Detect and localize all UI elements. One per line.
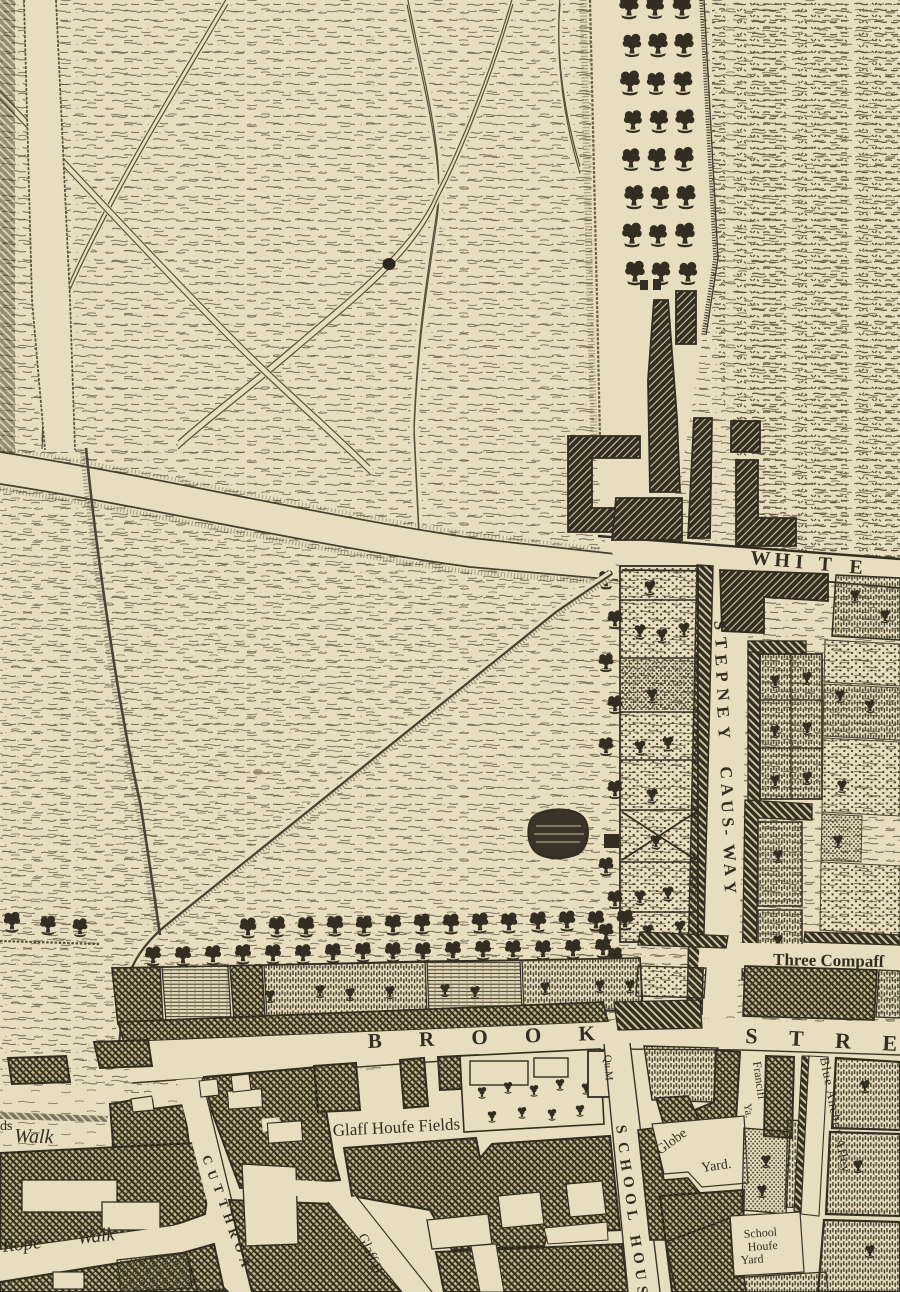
svg-text:Y: Y [714, 725, 734, 739]
svg-text:P: P [712, 670, 732, 682]
svg-text:T: T [818, 553, 834, 576]
svg-text:Qu.M: Qu.M [601, 1054, 615, 1081]
svg-text:Ya.: Ya. [741, 1103, 755, 1119]
svg-text:Walk: Walk [14, 1125, 55, 1148]
svg-text:Three Compafſ: Three Compafſ [773, 950, 885, 971]
svg-text:C: C [716, 765, 736, 779]
svg-text:Y: Y [720, 880, 740, 894]
svg-text:S: S [718, 816, 738, 827]
svg-text:E: E [711, 653, 731, 666]
svg-text:ds: ds [0, 1119, 12, 1134]
svg-text:Walk: Walk [76, 1224, 116, 1249]
svg-text:S: S [710, 619, 730, 630]
svg-text:E: E [713, 705, 733, 718]
svg-text:Yard: Yard [740, 1251, 764, 1267]
svg-text:W: W [719, 843, 740, 862]
svg-text:U: U [717, 799, 737, 813]
svg-text:W: W [750, 547, 771, 570]
svg-text:Rope: Rope [0, 1232, 42, 1257]
svg-text:H: H [774, 549, 791, 572]
svg-text:E: E [849, 556, 864, 579]
